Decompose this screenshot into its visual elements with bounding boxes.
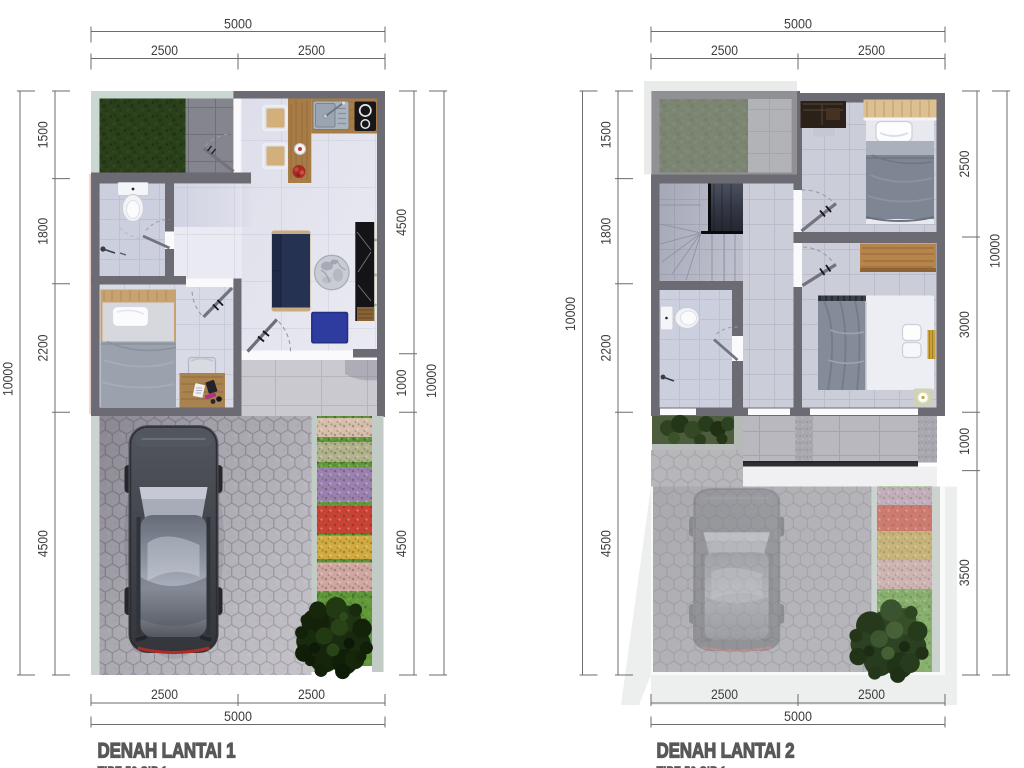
svg-text:2500: 2500 — [957, 151, 972, 178]
svg-text:3500: 3500 — [957, 559, 972, 586]
svg-text:1500: 1500 — [36, 121, 51, 148]
svg-text:10000: 10000 — [1, 362, 16, 396]
svg-text:5000: 5000 — [784, 709, 812, 724]
svg-text:DENAH LANTAI 1: DENAH LANTAI 1 — [98, 739, 236, 763]
svg-text:4500: 4500 — [394, 209, 409, 236]
svg-text:4500: 4500 — [599, 530, 614, 557]
svg-text:4500: 4500 — [394, 530, 409, 557]
svg-text:2500: 2500 — [298, 687, 325, 702]
svg-text:10000: 10000 — [424, 364, 439, 398]
svg-text:2500: 2500 — [858, 687, 885, 702]
svg-text:2500: 2500 — [711, 43, 738, 58]
svg-text:4500: 4500 — [36, 530, 51, 557]
svg-text:TIPE 50 SIP 1: TIPE 50 SIP 1 — [657, 764, 727, 768]
svg-text:2500: 2500 — [711, 687, 738, 702]
svg-text:1800: 1800 — [36, 218, 51, 245]
svg-text:5000: 5000 — [224, 17, 252, 32]
svg-text:2200: 2200 — [599, 335, 614, 362]
svg-text:3000: 3000 — [957, 311, 972, 338]
svg-text:5000: 5000 — [224, 709, 252, 724]
svg-text:1000: 1000 — [394, 370, 409, 397]
svg-text:2500: 2500 — [151, 687, 178, 702]
svg-text:2500: 2500 — [151, 43, 178, 58]
svg-text:5000: 5000 — [784, 17, 812, 32]
svg-text:10000: 10000 — [563, 297, 578, 331]
svg-text:1500: 1500 — [599, 121, 614, 148]
svg-text:2500: 2500 — [858, 43, 885, 58]
svg-text:TIPE 50 SIP 1: TIPE 50 SIP 1 — [98, 764, 168, 768]
svg-text:10000: 10000 — [988, 234, 1003, 268]
svg-text:1000: 1000 — [957, 428, 972, 455]
svg-text:2200: 2200 — [36, 335, 51, 362]
svg-text:2500: 2500 — [298, 43, 325, 58]
svg-text:1800: 1800 — [599, 218, 614, 245]
svg-text:DENAH LANTAI 2: DENAH LANTAI 2 — [657, 739, 795, 763]
